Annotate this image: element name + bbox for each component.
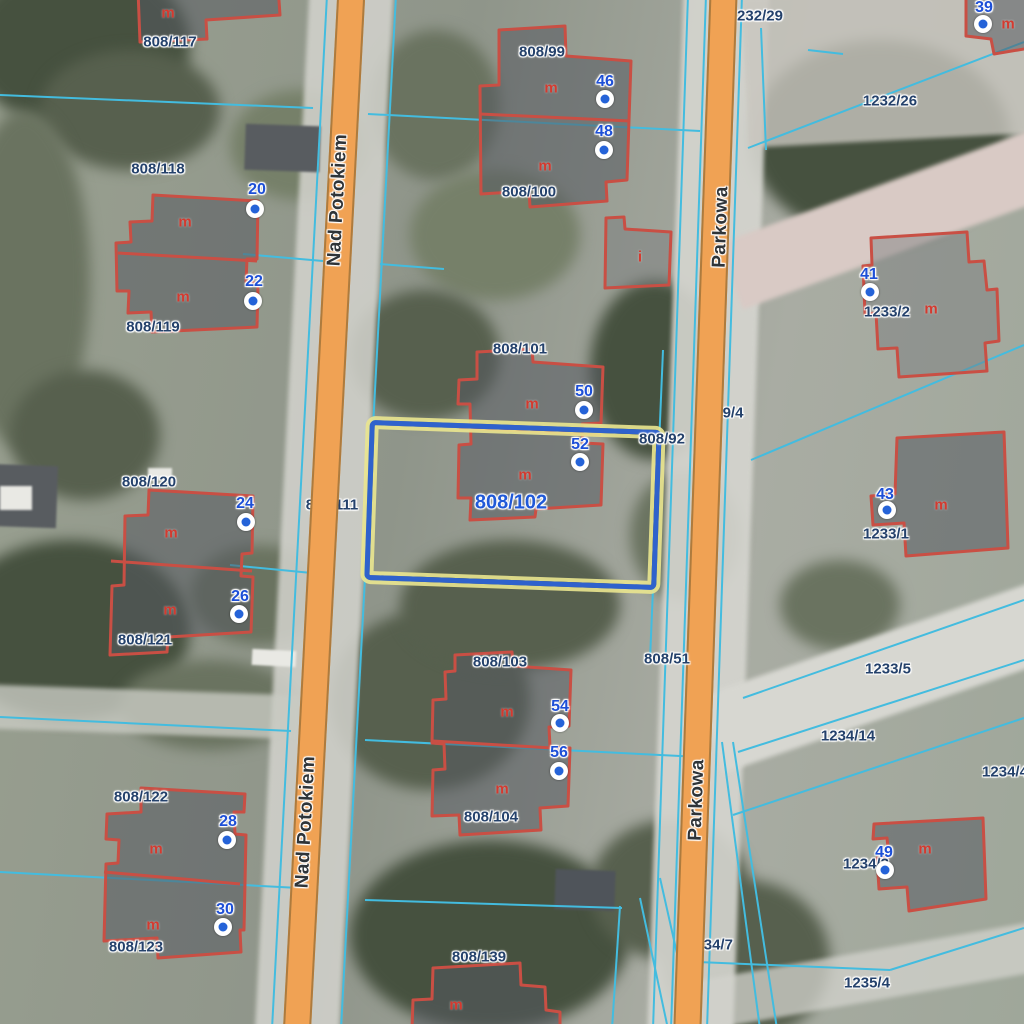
parcel-label: 1233/1 — [863, 526, 909, 543]
building-function-label: m — [176, 289, 189, 306]
building-function-label: i — [638, 249, 642, 266]
parcel-label: 808/122 — [114, 789, 168, 806]
address-marker-icon[interactable] — [974, 15, 992, 33]
address-number-label: 26 — [231, 588, 249, 606]
address-marker-icon[interactable] — [596, 90, 614, 108]
building-function-label: m — [146, 917, 159, 934]
building-function-label: m — [518, 467, 531, 484]
parcel-label-under-road: 9/4 — [723, 405, 744, 422]
address-marker-icon[interactable] — [550, 762, 568, 780]
parcel-label: 808/120 — [122, 474, 176, 491]
address-marker-icon[interactable] — [246, 200, 264, 218]
address-number-label: 50 — [575, 383, 593, 401]
address-marker-icon[interactable] — [861, 283, 879, 301]
address-marker-icon[interactable] — [218, 831, 236, 849]
address-number-label: 52 — [571, 436, 589, 454]
address-number-label: 41 — [860, 266, 878, 284]
parcel-label: 808/123 — [109, 939, 163, 956]
address-number-label: 46 — [596, 73, 614, 91]
address-marker-icon[interactable] — [595, 141, 613, 159]
building-function-label: m — [918, 841, 931, 858]
building-function-label: m — [495, 781, 508, 798]
street-name-label: Parkowa — [709, 186, 734, 268]
address-marker-icon[interactable] — [237, 513, 255, 531]
parcel-label: 1235/4 — [844, 975, 890, 992]
parcel-label: 808/99 — [519, 44, 565, 61]
building-function-label: m — [163, 602, 176, 619]
parcel-label: 808/100 — [502, 184, 556, 201]
parcel-label: 808/117 — [143, 34, 196, 51]
address-marker-icon[interactable] — [571, 453, 589, 471]
address-marker-icon[interactable] — [244, 292, 262, 310]
building-function-label: m — [934, 497, 947, 514]
address-marker-icon[interactable] — [214, 918, 232, 936]
building-function-label: m — [164, 525, 177, 542]
parcel-label: 808/51 — [644, 651, 690, 668]
parcel-label: 808/104 — [464, 809, 518, 826]
building-function-label: m — [525, 396, 538, 413]
parcel-label: 808/103 — [473, 654, 527, 671]
address-marker-icon[interactable] — [878, 501, 896, 519]
parcel-label: 808/119 — [126, 319, 179, 336]
address-marker-icon[interactable] — [230, 605, 248, 623]
address-number-label: 24 — [236, 495, 254, 513]
parcel-label-under-road: 232/29 — [737, 8, 783, 25]
building-function-label: m — [449, 997, 462, 1014]
address-marker-icon[interactable] — [551, 714, 569, 732]
address-number-label: 22 — [245, 273, 263, 291]
selected-parcel-label: 808/102 — [475, 492, 547, 515]
address-number-label: 20 — [248, 181, 266, 199]
parcel-label: 1234/4 — [982, 764, 1024, 781]
building-function-label: m — [1001, 16, 1014, 33]
parcel-label: 808/101 — [493, 341, 547, 358]
address-marker-icon[interactable] — [575, 401, 593, 419]
parcel-label: 1233/2 — [864, 304, 910, 321]
parcel-label: 1232/26 — [863, 93, 917, 110]
map-viewport[interactable]: 232/299/4808/1111234/7 808/117808/118808… — [0, 0, 1024, 1024]
parcel-label: 808/118 — [131, 161, 184, 178]
building-function-label: m — [178, 214, 191, 231]
building-function-label: m — [149, 841, 162, 858]
parcel-label: 808/139 — [452, 949, 506, 966]
building-function-label: m — [924, 301, 937, 318]
address-number-label: 56 — [550, 744, 568, 762]
building-function-label: m — [538, 158, 551, 175]
address-number-label: 48 — [595, 123, 613, 141]
street-name-label: Parkowa — [685, 759, 710, 841]
parcel-label: 1233/5 — [865, 661, 911, 678]
address-marker-icon[interactable] — [876, 861, 894, 879]
building-function-label: m — [161, 5, 174, 22]
parcel-label: 808/92 — [639, 431, 685, 448]
address-number-label: 28 — [219, 813, 237, 831]
address-number-label: 49 — [875, 844, 893, 862]
address-number-label: 30 — [216, 901, 234, 919]
parcel-label: 1234/14 — [821, 728, 875, 745]
building-function-label: m — [544, 80, 557, 97]
building-function-label: m — [500, 704, 513, 721]
parcel-label: 808/121 — [118, 632, 172, 649]
